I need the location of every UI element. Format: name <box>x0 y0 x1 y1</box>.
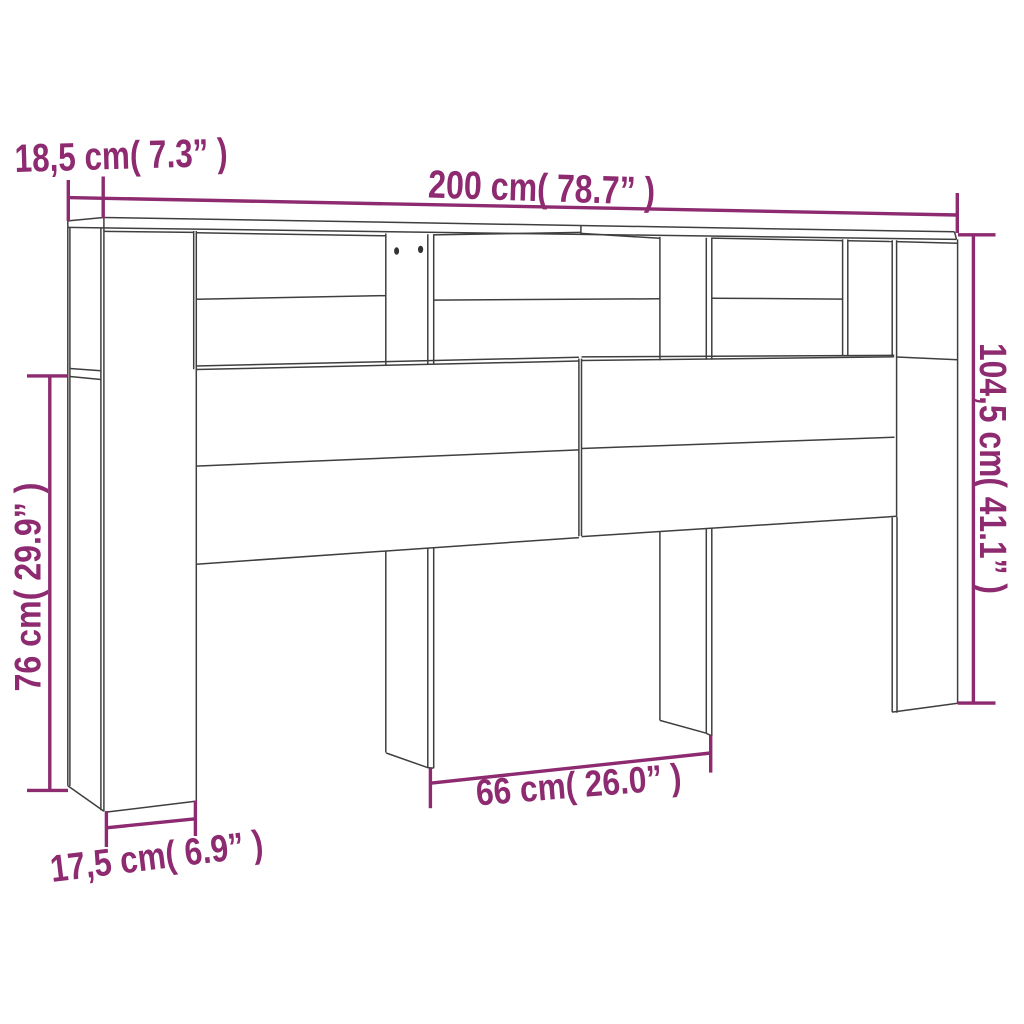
svg-text:200 cm( 78.7” ): 200 cm( 78.7” ) <box>428 163 656 214</box>
svg-text:18,5 cm( 7.3” ): 18,5 cm( 7.3” ) <box>14 131 228 181</box>
svg-text:104,5 cm( 41.1” ): 104,5 cm( 41.1” ) <box>971 343 1013 594</box>
svg-text:76 cm( 29.9” ): 76 cm( 29.9” ) <box>8 483 49 692</box>
